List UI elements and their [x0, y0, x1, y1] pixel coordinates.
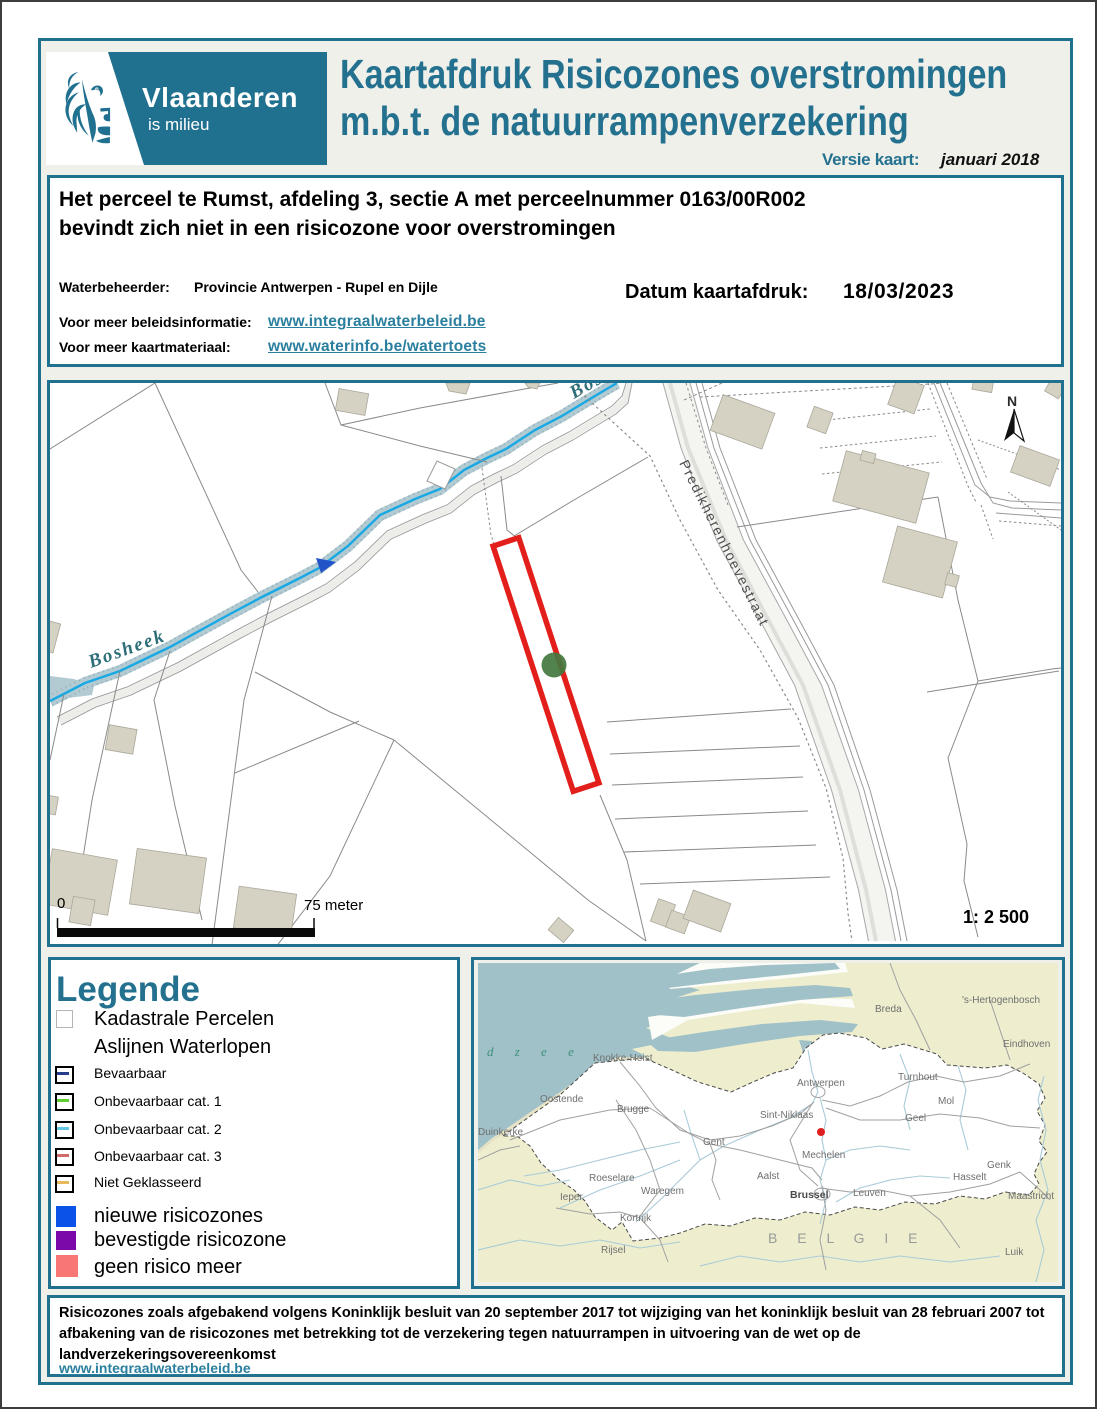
- svg-text:Geel: Geel: [905, 1113, 926, 1124]
- svg-text:Roeselare: Roeselare: [589, 1173, 635, 1184]
- svg-text:N: N: [1007, 393, 1017, 409]
- svg-text:B E L G I E: B E L G I E: [768, 1230, 926, 1246]
- svg-text:Rijsel: Rijsel: [601, 1245, 625, 1256]
- svg-text:d z e e: d z e e: [487, 1044, 583, 1059]
- svg-text:Turnhout: Turnhout: [898, 1072, 938, 1083]
- svg-text:Eindhoven: Eindhoven: [1003, 1039, 1050, 1050]
- svg-text:Hasselt: Hasselt: [953, 1172, 987, 1183]
- svg-text:Duinkerke: Duinkerke: [478, 1127, 523, 1138]
- svg-text:Knokke-Heist: Knokke-Heist: [593, 1053, 653, 1064]
- svg-text:Ieper: Ieper: [560, 1192, 583, 1203]
- svg-text:Gent: Gent: [703, 1137, 725, 1148]
- svg-text:0: 0: [57, 895, 65, 912]
- svg-text:Waregem: Waregem: [641, 1186, 684, 1197]
- svg-text:'s-Hertogenbosch: 's-Hertogenbosch: [962, 995, 1040, 1006]
- svg-text:75 meter: 75 meter: [304, 897, 363, 914]
- svg-text:Antwerpen: Antwerpen: [797, 1078, 845, 1089]
- svg-text:Brugge: Brugge: [617, 1104, 650, 1115]
- svg-text:Genk: Genk: [987, 1160, 1012, 1171]
- svg-text:Mol: Mol: [938, 1096, 954, 1107]
- svg-text:Sint-Niklaas: Sint-Niklaas: [760, 1110, 813, 1121]
- svg-text:1: 2 500: 1: 2 500: [963, 907, 1029, 927]
- svg-text:Oostende: Oostende: [540, 1094, 584, 1105]
- svg-text:Kortrijk: Kortrijk: [620, 1213, 652, 1224]
- svg-text:Maastricht: Maastricht: [1008, 1191, 1054, 1202]
- svg-text:Luik: Luik: [1005, 1247, 1024, 1258]
- svg-text:Aalst: Aalst: [757, 1171, 779, 1182]
- svg-text:Brussel: Brussel: [790, 1189, 829, 1201]
- svg-text:Mechelen: Mechelen: [802, 1150, 845, 1161]
- svg-text:Leuven: Leuven: [853, 1188, 886, 1199]
- svg-text:Breda: Breda: [875, 1004, 902, 1015]
